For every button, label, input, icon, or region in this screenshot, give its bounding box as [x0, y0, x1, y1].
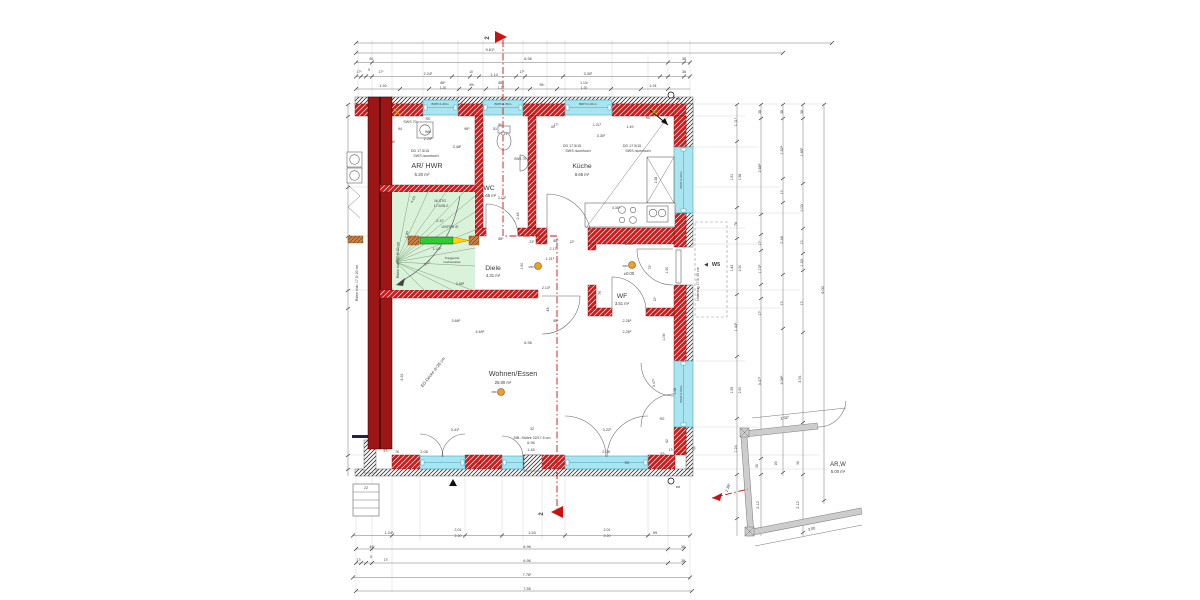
- dims_right-label: 2.12: [796, 501, 800, 508]
- dims_right-label: 17¹: [780, 300, 784, 306]
- dims_right-label: 2.50: [738, 387, 742, 394]
- annotations-label: 17.9/26.0: [434, 204, 449, 208]
- dims_bottom-label: 99: [653, 531, 657, 535]
- annotations-label: WM: [425, 130, 431, 134]
- dims_right-label: 38: [780, 110, 784, 114]
- dims_right-label: 1.11¹: [734, 117, 738, 126]
- dims_right-label: 1.03: [800, 204, 804, 211]
- dims_top-label: 5: [368, 68, 370, 72]
- annotations-label: RM: [492, 390, 497, 394]
- dims_plan-label: 3.22¹: [603, 428, 612, 432]
- dims_right-label: 1.55: [730, 387, 734, 394]
- dims_bottom-label: 1.53: [528, 531, 535, 535]
- annotations-label: ±0.00: [624, 271, 635, 276]
- rainpipe-marker: [668, 92, 674, 98]
- rooms-label: Diele: [485, 265, 501, 272]
- rooms-label: AR/ HWR: [411, 161, 442, 170]
- dims_plan-label: 3.47¹: [652, 378, 656, 387]
- entrance-triangle: [449, 479, 457, 486]
- annotations-label: 32: [530, 427, 534, 431]
- kitchen-fixtures: [585, 114, 675, 228]
- dims_right-label: 1.30: [800, 259, 804, 266]
- fragment-label: 2.92⁵: [780, 415, 790, 420]
- dims_plan-label: 2.38: [654, 177, 658, 184]
- annotations-label: SWS 70: [403, 120, 416, 124]
- dims_top-label: 38: [682, 57, 686, 61]
- dims_right-label: 76: [734, 222, 738, 226]
- dims_plan-label: 94: [398, 127, 402, 131]
- annotations-label: DD 17.5/15: [563, 144, 581, 148]
- dims_plan-label: 43¹: [546, 306, 550, 312]
- dims_bottom-label: 44¹: [369, 545, 375, 549]
- annotations-label: BRH=1.00m: [432, 102, 449, 106]
- dims_plan-label: 2.08: [420, 450, 427, 454]
- dims_right-label: 17¹: [780, 189, 784, 195]
- dims_right-label: 1.51: [730, 174, 734, 181]
- dims_bottom-label: 6.96: [523, 545, 530, 549]
- dims_plan-label: 2.13¹: [498, 196, 507, 200]
- dims_plan-label: 4.30¹: [612, 206, 621, 210]
- dims_plan-label: 96⁵: [464, 127, 470, 131]
- dims_plan-label: 96: [498, 123, 502, 127]
- dims_plan-label: 3.48¹: [453, 145, 462, 149]
- dims_right-label: 2.50: [738, 265, 742, 272]
- dims_bottom-label: 2.01: [604, 528, 611, 532]
- dims_right-label: 17⁵: [758, 240, 762, 246]
- dims_plan-label: 1.06¹: [662, 332, 666, 341]
- markers-label: 2: [485, 36, 491, 40]
- dims_plan-label: 3.68⁵: [452, 319, 461, 323]
- smoke-detector: [535, 263, 542, 270]
- dims_plan-label: 2.26⁵: [623, 319, 632, 323]
- rooms-label: 6.20 m²: [415, 172, 430, 177]
- entry-door-leaf: [676, 250, 681, 283]
- rooms-label: WF: [617, 293, 628, 300]
- annotations-label: Rähm b/d= 17.5/ 20 cm: [355, 265, 359, 302]
- dims_plan-label: 17¹: [669, 448, 674, 452]
- dims_bottom-label: 17¹: [384, 558, 390, 562]
- annotations-label: RO: [660, 417, 665, 421]
- dims_plan-label: 4.69⁵: [476, 330, 485, 334]
- dims_top-label: 88⁵: [498, 81, 504, 85]
- dims_bottom-label: 2.20: [604, 534, 611, 538]
- dims_top-label: 59¹: [470, 83, 476, 87]
- dims_plan-label: 2.08: [602, 450, 609, 454]
- rooms-label: 25.90 m²: [495, 380, 512, 385]
- dims_bottom-label: 2.01: [455, 528, 462, 532]
- markers-label: ◀: [704, 262, 708, 268]
- dims_plan-label: 12⁵: [653, 296, 657, 302]
- rainpipe-marker: [668, 478, 674, 484]
- dims_right-label: 1.65¹: [800, 147, 804, 156]
- dims_plan-label: 76: [395, 450, 399, 454]
- annotations-label: SWS raumhoch: [413, 154, 438, 158]
- dims_right-label: 4.08⁵: [780, 375, 784, 384]
- annotations-label: StB.-Stütze 32/17.5 cm: [514, 436, 551, 440]
- dims_plan-label: 57¹: [384, 449, 390, 453]
- dims_right-label: 38: [800, 110, 804, 114]
- dims_plan-label: 62: [665, 439, 669, 443]
- annotations-label: RO: [426, 117, 431, 121]
- dims_plan-label: 73⁵: [648, 264, 652, 270]
- rooms-label: 4.31 m²: [486, 273, 501, 278]
- annotations-label: RR: [676, 485, 681, 489]
- dims_plan-label: 1.21⁵: [546, 257, 555, 261]
- annotations-label: Unterzug 17.5/ 45 cm: [696, 267, 700, 301]
- dims_bottom-label: 6.96: [523, 559, 530, 563]
- dims_plan-label: 6.96: [527, 441, 534, 445]
- dims_plan-label: 57¹: [661, 452, 667, 456]
- neighbor-fixtures: [347, 152, 363, 243]
- dims_top-label: 17⁵: [378, 70, 384, 74]
- dims_plan-label: 78: [383, 130, 387, 134]
- dims_right-label: 1.24: [734, 445, 738, 452]
- annotations-label: BRH=1.00 m: [579, 102, 597, 106]
- dims_top-label: 1.92: [379, 84, 386, 88]
- dims_plan-label: 3.91: [400, 373, 404, 380]
- dims_right-label: 9.00: [821, 286, 825, 293]
- dims_bottom-label: 2.20: [455, 534, 462, 538]
- annotations-label: RO: [646, 116, 651, 120]
- dims_top-label: 9.61¹: [485, 47, 495, 52]
- annotations-label: DD 17.5/15: [623, 144, 641, 148]
- annotations-label: RR: [676, 97, 681, 101]
- dims_plan-label: 51: [493, 127, 497, 131]
- annotations-label: BRH=1.00m: [679, 385, 683, 402]
- annotations-label: BRH=1.50m: [495, 102, 512, 106]
- dims_top-label: 1.20: [440, 86, 447, 90]
- smoke-detector: [498, 389, 505, 396]
- bearing-block: [469, 236, 479, 245]
- dims_right-label: 3.47¹: [758, 376, 762, 385]
- annotations-label: SWS raumhoch: [625, 149, 650, 153]
- rooms-label: Wohnen/Essen: [489, 369, 538, 378]
- dims_right-label: 17⁵: [758, 310, 762, 316]
- rooms-label: 3.51 m²: [615, 301, 630, 306]
- dims_right-label: 3.91: [798, 375, 802, 382]
- dims_bottom-label: 7.55: [523, 587, 530, 591]
- dims_top-label: 1.14: [490, 73, 497, 77]
- dims_top-label: 17⁵: [356, 70, 362, 74]
- dims_plan-label: 3.30¹: [597, 134, 606, 138]
- dims_plan-label: 88⁵: [553, 239, 559, 243]
- annotations-label: DD 17.5/15: [411, 149, 429, 153]
- annotations-label: RO: [625, 461, 630, 465]
- dims_bottom-label: 7.76¹: [523, 573, 532, 577]
- dims_plan-label: 3.41¹: [451, 428, 460, 432]
- dims_top-label: 6.96: [524, 57, 531, 61]
- dims_plan-label: 1.21¹: [593, 123, 602, 127]
- markers-label: W5: [712, 262, 720, 268]
- dims_right-label: 20¹: [774, 460, 778, 466]
- dims_plan-label: 1.50: [520, 263, 524, 270]
- markers-label: 4: [720, 492, 723, 497]
- dims_plan-label: 2.09: [625, 242, 632, 246]
- dims_bottom-label: 17¹: [357, 558, 363, 562]
- dims_right-label: 38: [755, 464, 759, 468]
- annotations-label: RM: [623, 264, 628, 268]
- dims_plan-label: 88⁵: [498, 237, 504, 241]
- dims_plan-label: 50: [391, 140, 395, 144]
- dims_plan-label: 2.24¹: [424, 137, 433, 141]
- dims_plan-label: 1.14¹: [433, 247, 442, 251]
- dims_top-label: 10: [469, 70, 473, 74]
- smoke-detector: [629, 262, 636, 269]
- dims_right-label: 1.58: [738, 174, 742, 181]
- dims_plan-label: 6.96: [524, 341, 531, 345]
- annotations-label: 16 STG: [434, 199, 446, 203]
- dims_top-label: 95¹: [540, 83, 546, 87]
- dims_top-label: 38: [682, 70, 686, 74]
- dims_right-label: 38: [796, 461, 800, 465]
- dims_bottom-label: 38: [681, 545, 685, 549]
- dims_right-label: 1.52⁵: [780, 145, 784, 154]
- dims_plan-label: 2.48: [516, 213, 520, 220]
- dims_right-label: 1.73⁵: [758, 264, 762, 273]
- annotations-label: RO: [477, 461, 482, 465]
- dims_plan-label: 2.13¹: [542, 286, 551, 290]
- dims_plan-label: 79: [598, 291, 602, 295]
- dims_top-label: 1.20: [498, 86, 505, 90]
- dims_top-label: 88⁵: [440, 81, 446, 85]
- dims_plan-label: 3.68⁵: [456, 282, 465, 286]
- bearing-block: [408, 236, 419, 245]
- dims_top-label: 40: [369, 57, 373, 61]
- dims_top-label: 3.30¹: [584, 72, 593, 76]
- dims_plan-label: 22: [364, 486, 368, 490]
- dims_right-label: 2.68⁵: [758, 163, 762, 172]
- lintel-bar: [420, 237, 453, 244]
- dims_plan-label: 1.58: [673, 388, 677, 395]
- dims_plan-label: 1.50: [665, 267, 669, 274]
- dims_bottom-label: 38: [681, 559, 685, 563]
- dims_plan-label: 12⁵: [570, 240, 576, 244]
- rooms-label: WC: [483, 185, 494, 192]
- annotations-label: 2.47: [436, 219, 443, 223]
- dims_right-label: 2.48: [780, 236, 784, 243]
- dims_right-label: 1.44¹: [734, 322, 738, 331]
- rooms-label: AR,W: [830, 462, 846, 468]
- dims_top-label: 1.13²: [580, 81, 589, 85]
- annotations-label: SWS 70: [514, 157, 526, 161]
- annotations-label: BRH=1.00m: [679, 171, 683, 188]
- floor-plan-drawing: AR/ HWR6.20 m²WC1.65 m²Küche8.66 m²Diele…: [0, 0, 1200, 600]
- floor-plan-canvas: AR/ HWR6.20 m²WC1.65 m²Küche8.66 m²Diele…: [0, 0, 1200, 600]
- dims_right-label: 17¹: [800, 300, 804, 306]
- dims_right-label: 1.43: [730, 265, 734, 272]
- dims_plan-label: 17⁵: [554, 123, 560, 127]
- dims_plan-label: 1.14: [501, 132, 507, 136]
- dims_plan-label: 88⁵: [553, 319, 559, 323]
- annotations-label: EG-Decke d=20 cm: [420, 356, 447, 388]
- annotations-label: Rähm b/d= 17.5/ 20 cm: [396, 242, 400, 279]
- dims_top-label: 1.91: [649, 84, 656, 88]
- rooms-label: 5.00 m²: [831, 469, 846, 474]
- dims_top-label: 1.20: [581, 86, 588, 90]
- annotations-label: SWS raumhoch: [565, 149, 590, 153]
- dims_top-label: 2.24¹: [424, 72, 433, 76]
- fragment-label: 3.00: [808, 526, 816, 532]
- rooms-label: 1.65 m²: [482, 193, 497, 198]
- rooms-label: Küche: [572, 163, 591, 170]
- dims_right-label: 2.12: [756, 501, 760, 508]
- dims_right-label: 17¹: [800, 239, 804, 245]
- annotations-label: UV/FBH /E: [441, 225, 459, 229]
- dims_plan-label: 1.45: [527, 448, 534, 452]
- annotations-label: nachweisbar: [443, 260, 460, 264]
- rooms-label: 8.66 m²: [575, 172, 590, 177]
- party-wall: [368, 97, 392, 449]
- dims_plan-label: 1.49: [627, 125, 634, 129]
- dims_plan-label: 2.17: [550, 247, 557, 251]
- dims_top-label: 17⁵: [519, 70, 525, 74]
- dims_bottom-label: 1.24¹: [385, 531, 394, 535]
- dims_plan-label: 2.26⁵: [623, 330, 632, 334]
- annotations-label: RM: [529, 265, 534, 269]
- fragment-label: 2.39⁵: [725, 482, 732, 492]
- dims_bottom-label: 5: [370, 555, 372, 559]
- dims_plan-label: 23⁵: [529, 240, 535, 244]
- drain-arrowhead: [661, 118, 668, 125]
- dims_right-label: 38: [758, 110, 762, 114]
